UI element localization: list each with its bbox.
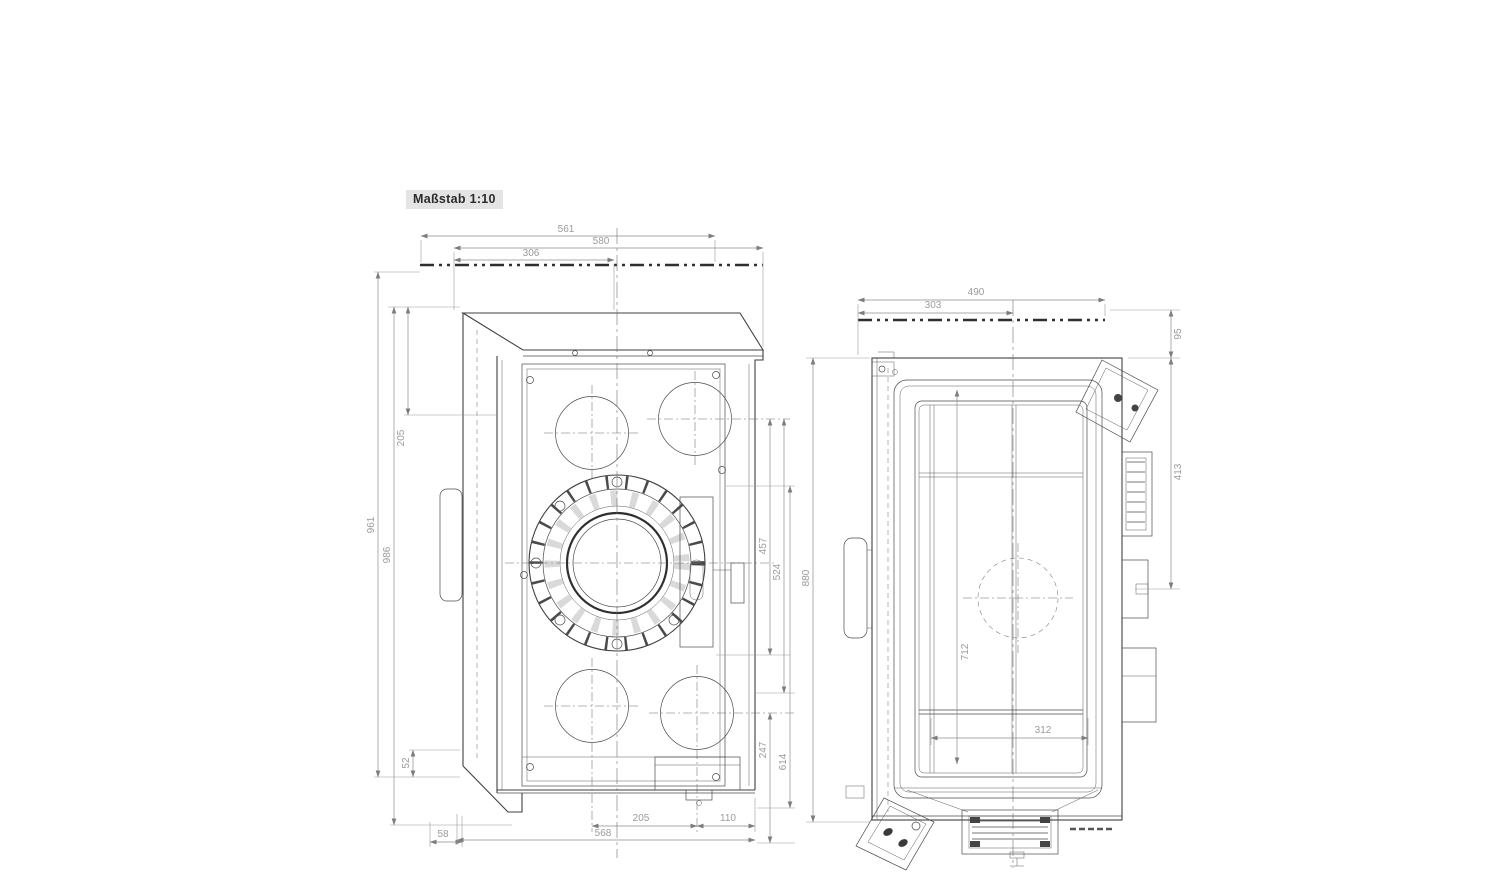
dim-961: 961 [366, 272, 460, 777]
svg-text:303: 303 [925, 300, 942, 311]
dim-303: 303 [858, 300, 1013, 313]
svg-text:312: 312 [1035, 725, 1052, 736]
dim-457: 457 [716, 419, 790, 655]
side-dimensions: 490 303 95 413 [801, 287, 1184, 822]
svg-text:58: 58 [437, 829, 449, 840]
dim-247: 247 [757, 713, 795, 843]
svg-text:413: 413 [1173, 463, 1184, 480]
front-collar-side-plate [680, 497, 744, 647]
front-side-panel-bracket [440, 489, 462, 601]
svg-text:986: 986 [382, 546, 393, 563]
side-body [872, 358, 1122, 820]
svg-text:580: 580 [593, 236, 610, 247]
svg-text:306: 306 [523, 248, 540, 259]
side-lower-bracket [1122, 560, 1156, 722]
svg-text:712: 712 [960, 643, 971, 660]
front-view: 561 580 306 961 [366, 224, 795, 858]
svg-text:205: 205 [633, 813, 650, 824]
svg-text:524: 524 [772, 563, 783, 580]
svg-text:490: 490 [968, 287, 985, 298]
svg-text:457: 457 [758, 537, 769, 554]
side-flue-circle [963, 543, 1073, 653]
svg-text:110: 110 [720, 813, 736, 824]
front-dimensions: 561 580 306 961 [366, 224, 795, 847]
side-view: 490 303 95 413 [801, 287, 1184, 870]
dim-580: 580 [454, 236, 763, 347]
dim-95: 95 [1110, 310, 1184, 358]
side-inner-grid [919, 405, 1083, 773]
side-vent-block [1122, 452, 1152, 536]
side-top-latch [1076, 360, 1158, 442]
front-body [463, 313, 763, 812]
dim-524: 524 [755, 419, 795, 693]
svg-text:568: 568 [595, 828, 612, 839]
dim-712: 712 [957, 390, 971, 764]
svg-text:205: 205 [396, 429, 407, 446]
dim-52: 52 [401, 750, 460, 777]
technical-drawing: 561 580 306 961 [0, 0, 1491, 883]
dim-413: 413 [1135, 358, 1184, 589]
svg-text:52: 52 [401, 757, 412, 769]
dim-306: 306 [454, 248, 614, 310]
dim-110: 110 [697, 798, 755, 832]
side-top-left-fittings [872, 352, 898, 376]
dim-880: 880 [801, 358, 870, 822]
dim-205-left: 205 [396, 307, 497, 446]
dim-568: 568 [457, 814, 755, 845]
svg-text:95: 95 [1173, 328, 1184, 340]
side-handle-bracket [844, 538, 872, 638]
dim-986: 986 [382, 307, 512, 825]
dim-614: 614 [726, 486, 795, 808]
side-bottom-hinge [846, 786, 934, 870]
svg-text:880: 880 [801, 569, 812, 586]
dim-561: 561 [421, 224, 715, 262]
svg-text:247: 247 [758, 741, 769, 758]
dim-312: 312 [931, 718, 1088, 745]
svg-text:561: 561 [558, 224, 575, 235]
svg-text:961: 961 [366, 516, 377, 533]
side-bottom-grille [962, 810, 1114, 866]
dim-205-bottom: 205 [592, 813, 697, 826]
svg-text:614: 614 [778, 753, 789, 770]
drawing-sheet: Maßstab 1:10 [0, 0, 1491, 883]
